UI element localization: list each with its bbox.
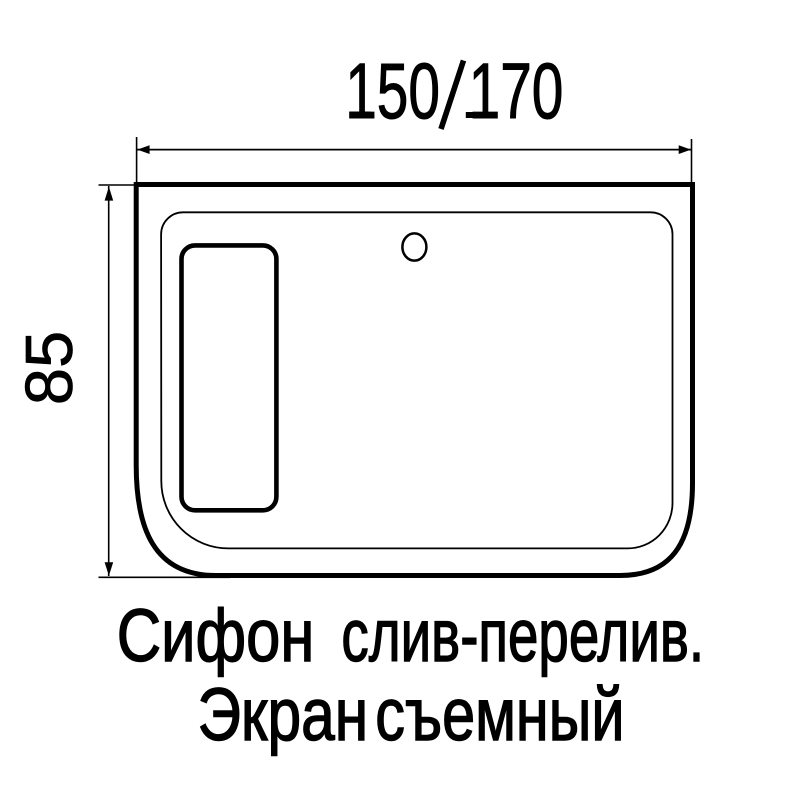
svg-text:85: 85 <box>12 331 87 406</box>
svg-text:съемный: съемный <box>375 674 624 757</box>
svg-text:слив-перелив.: слив-перелив. <box>341 594 704 677</box>
svg-text:Экран: Экран <box>198 674 369 756</box>
svg-text:170: 170 <box>469 47 564 135</box>
svg-text:Сифон: Сифон <box>117 594 315 677</box>
svg-text:150: 150 <box>345 47 440 135</box>
